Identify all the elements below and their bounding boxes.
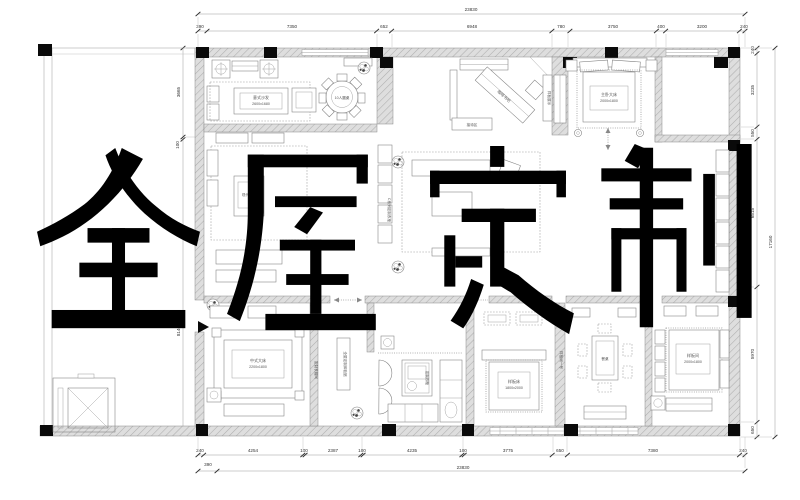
- experience-hall-label: 全屋定制体验馆: [337, 338, 350, 390]
- svg-text:3750: 3750: [608, 24, 619, 29]
- svg-text:240: 240: [750, 46, 755, 54]
- svg-text:样板床: 样板床: [508, 378, 520, 384]
- svg-text:6948: 6948: [467, 24, 478, 29]
- elevator: [53, 374, 115, 432]
- svg-text:7350: 7350: [287, 24, 298, 29]
- svg-text:550: 550: [750, 129, 755, 137]
- floor-plan-page: 全屋定制: [0, 0, 800, 500]
- svg-text:240: 240: [740, 24, 748, 29]
- svg-text:意式沙发: 意式沙发: [253, 94, 269, 100]
- svg-text:4235: 4235: [407, 448, 418, 453]
- svg-text:650: 650: [556, 448, 564, 453]
- svg-text:定制衣帽间: 定制衣帽间: [314, 361, 319, 379]
- svg-text:10人圆桌: 10人圆桌: [335, 95, 350, 100]
- overlay-char-quan: [37, 148, 200, 330]
- svg-text:400: 400: [657, 24, 665, 29]
- svg-text:3200: 3200: [697, 24, 708, 29]
- overlay-char-ding: [419, 146, 577, 336]
- svg-text:7380: 7380: [648, 448, 659, 453]
- svg-text:2000x1800: 2000x1800: [684, 360, 702, 364]
- svg-text:2600x1680: 2600x1680: [252, 102, 270, 106]
- svg-text:390: 390: [196, 24, 204, 29]
- dimension-top: 23830 390 7350 652 6948 780 3750 400 320…: [196, 7, 749, 47]
- round-dining-table: 10人圆桌: [319, 74, 365, 120]
- svg-text:17160: 17160: [768, 235, 773, 248]
- svg-text:240: 240: [739, 448, 747, 453]
- svg-text:2200x1800: 2200x1800: [249, 365, 267, 369]
- svg-text:3235: 3235: [750, 84, 755, 95]
- svg-text:5970: 5970: [750, 348, 755, 359]
- overlay-char-wu: [227, 151, 387, 332]
- svg-text:全屋定制体验馆: 全屋定制体验馆: [343, 351, 348, 377]
- svg-text:C系列定制衣柜: C系列定制衣柜: [387, 198, 392, 223]
- svg-text:23830: 23830: [457, 465, 470, 470]
- room-sofa-display: 意式沙发 2600x1680 10人圆桌: [207, 58, 372, 121]
- svg-text:4254: 4254: [248, 448, 259, 453]
- svg-text:主卧大床: 主卧大床: [601, 91, 617, 97]
- dimension-bottom: 240 4254 100 2387 100 4235 100 3775 650 …: [196, 437, 748, 473]
- svg-text:100: 100: [300, 448, 308, 453]
- overlay-char-zhi: [598, 144, 765, 331]
- svg-text:390: 390: [204, 462, 212, 467]
- svg-text:780: 780: [557, 24, 565, 29]
- svg-text:餐桌: 餐桌: [601, 356, 609, 361]
- svg-text:接待区: 接待区: [467, 122, 478, 127]
- svg-text:样板展示: 样板展示: [547, 91, 552, 106]
- svg-text:中式大床: 中式大床: [250, 357, 266, 363]
- svg-text:650: 650: [750, 426, 755, 434]
- svg-text:2000x1800: 2000x1800: [600, 99, 618, 103]
- svg-text:2387: 2387: [328, 448, 339, 453]
- svg-text:652: 652: [380, 24, 388, 29]
- svg-text:240: 240: [196, 448, 204, 453]
- room-master-bedroom: 主卧大床 2000x1800: [554, 58, 657, 137]
- svg-text:1800x2000: 1800x2000: [505, 386, 523, 390]
- svg-text:样板间一号: 样板间一号: [559, 351, 564, 369]
- svg-text:3775: 3775: [503, 448, 514, 453]
- svg-text:定制橱柜: 定制橱柜: [425, 371, 430, 386]
- svg-text:23830: 23830: [465, 7, 478, 12]
- svg-text:样板间: 样板间: [687, 352, 699, 358]
- svg-text:3665: 3665: [176, 86, 181, 97]
